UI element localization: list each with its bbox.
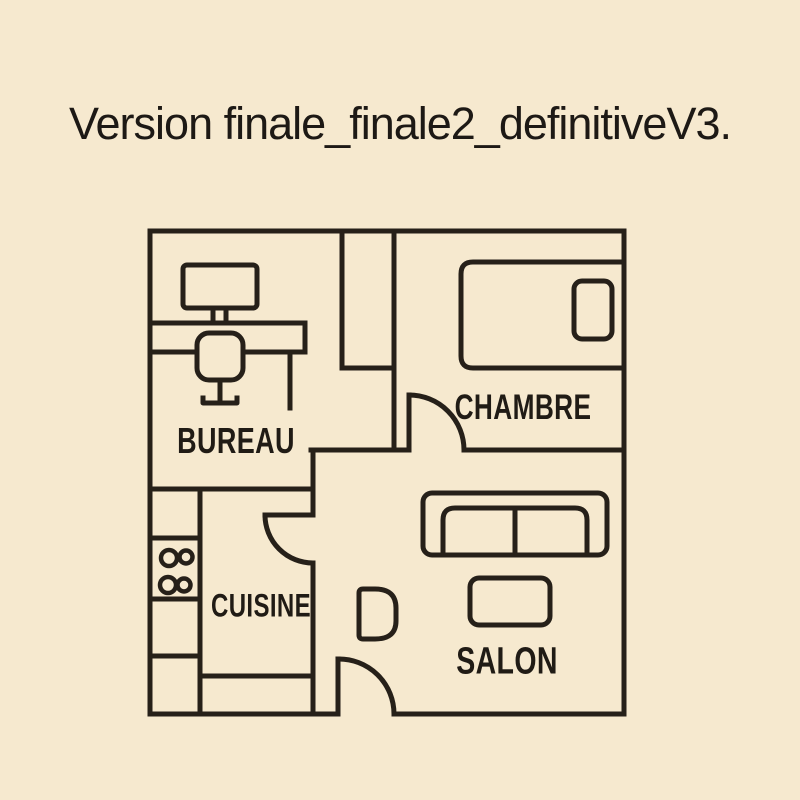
armchair-icon	[359, 589, 396, 639]
entrance-door	[338, 659, 394, 714]
floor-plan	[0, 0, 800, 800]
sofa-icon	[423, 493, 607, 555]
room-label-chambre: CHAMBRE	[455, 388, 592, 428]
office-chair-icon	[197, 333, 243, 403]
stove-burners-icon	[160, 550, 193, 593]
bed-with-pillow-icon	[461, 262, 624, 368]
room-label-salon: SALON	[456, 641, 558, 684]
closet-wall	[342, 231, 394, 368]
cuisine-door	[265, 515, 313, 563]
coffee-table-icon	[470, 578, 550, 625]
room-label-cuisine: CUISINE	[211, 588, 311, 625]
kitchen-counter-icon	[150, 489, 200, 714]
room-label-bureau: BUREAU	[177, 420, 295, 462]
